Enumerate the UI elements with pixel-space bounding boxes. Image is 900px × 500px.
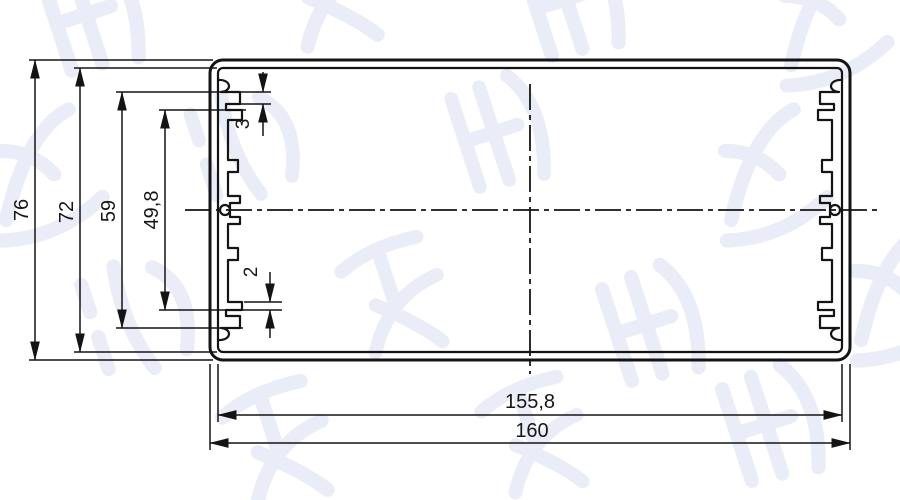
dim-label-76: 76: [11, 199, 33, 221]
dim-label-2: 2: [241, 267, 262, 278]
watermark-layer: [0, 0, 900, 500]
dim-label-155-8: 155,8: [505, 391, 555, 413]
technical-drawing-canvas: 76 72 59 49,8 3 2 155,8 160: [0, 0, 900, 500]
dim-label-160: 160: [515, 420, 548, 442]
drawing-svg: 76 72 59 49,8 3 2 155,8 160: [0, 0, 900, 500]
dim-label-72: 72: [56, 201, 78, 223]
dim-label-59: 59: [98, 200, 120, 222]
dim-label-3: 3: [233, 119, 254, 130]
dim-label-49-8: 49,8: [141, 191, 163, 230]
